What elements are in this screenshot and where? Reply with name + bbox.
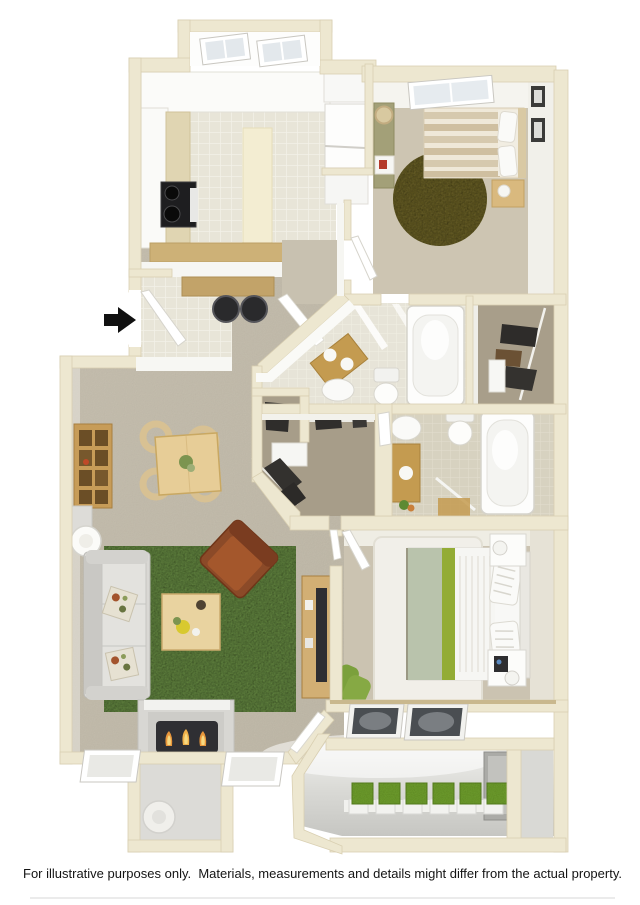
svg-text:For illustrative purposes only: For illustrative purposes only. Material… bbox=[23, 866, 622, 881]
